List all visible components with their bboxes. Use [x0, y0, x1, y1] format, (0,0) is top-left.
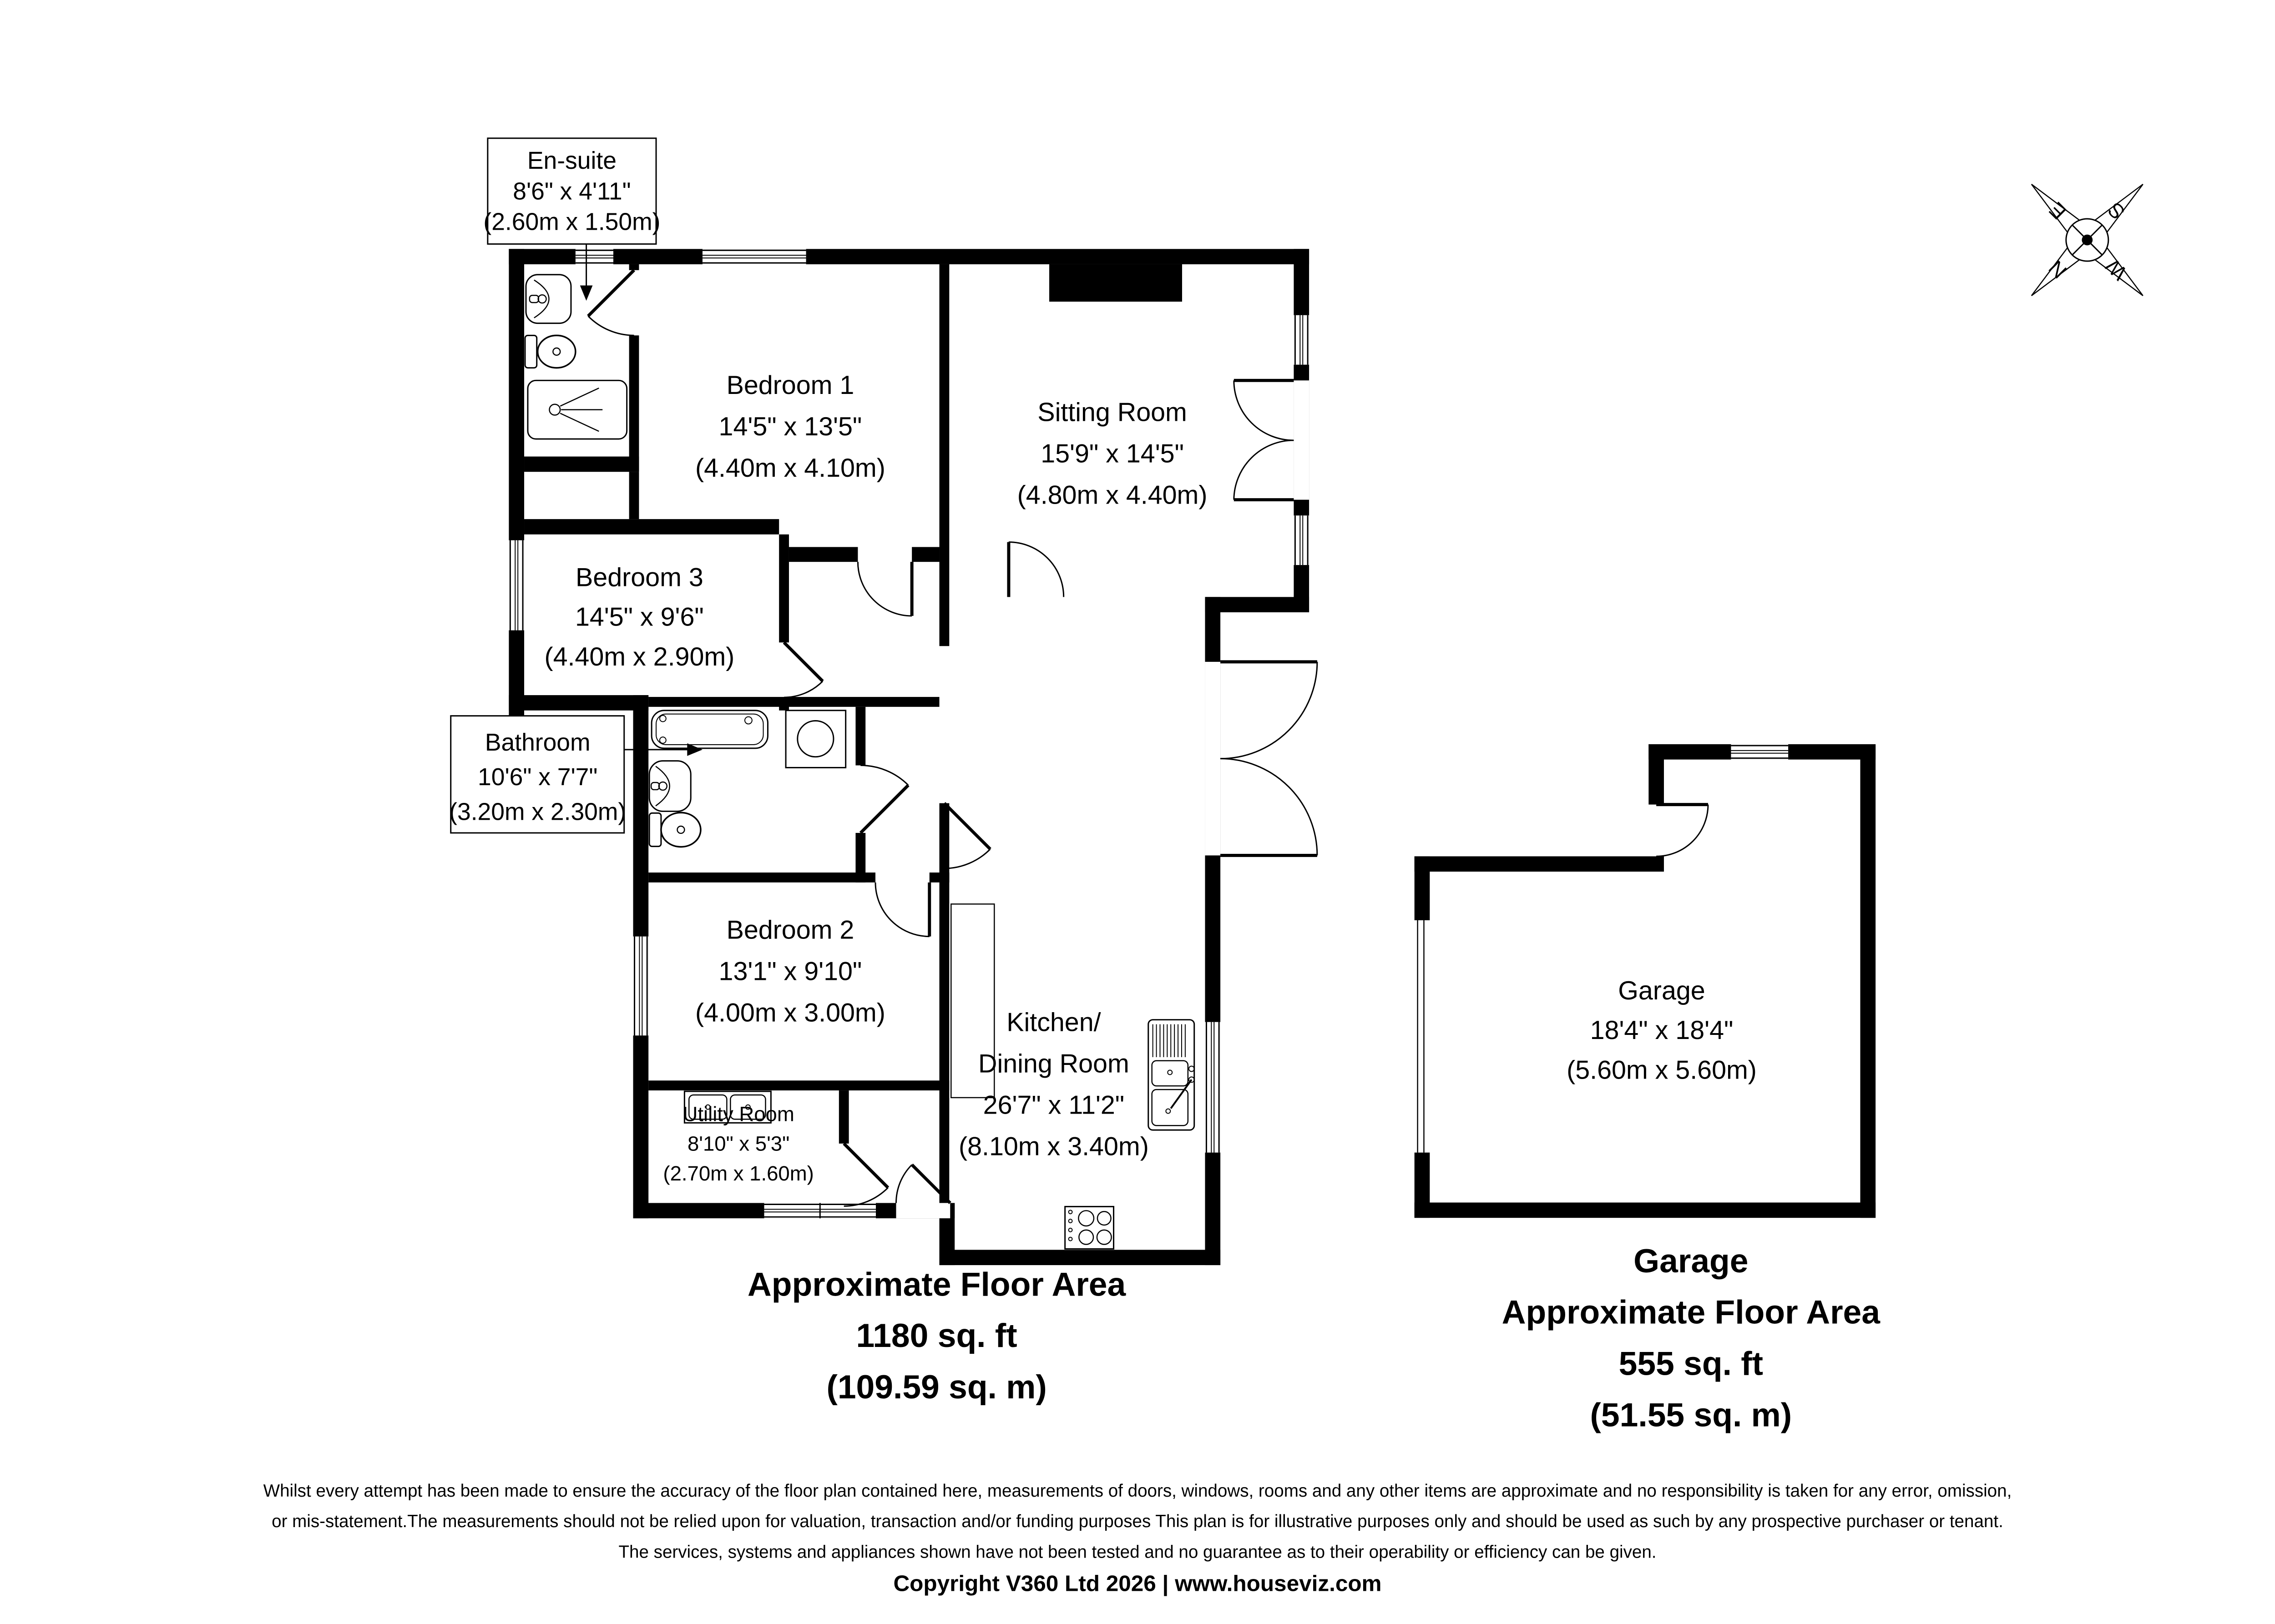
bedroom3-metric: (4.40m x 2.90m) — [544, 642, 734, 671]
door-sitting-room — [1009, 542, 1064, 597]
door-ensuite — [588, 270, 634, 336]
ensuite-leader-arrow-icon — [580, 285, 593, 301]
house-area-sqft: 1180 sq. ft — [856, 1317, 1017, 1354]
disclaimer-line1: Whilst every attempt has been made to en… — [263, 1481, 2012, 1501]
garage-metric: (5.60m x 5.60m) — [1567, 1055, 1757, 1084]
window-utility — [764, 1203, 876, 1218]
garage-area-sqft: 555 sq. ft — [1619, 1345, 1763, 1382]
window-kitchen — [1205, 1022, 1220, 1153]
garage-area-sqm: (51.55 sq. m) — [1590, 1396, 1792, 1433]
garage-name: Garage — [1618, 976, 1705, 1005]
ensuite-toilet-icon — [525, 335, 576, 368]
compass-rose-icon: N S E W — [1976, 129, 2199, 352]
kitchen-sink-icon — [1148, 1020, 1194, 1130]
bedroom1-name: Bedroom 1 — [727, 371, 854, 400]
window-sitting-lower — [1294, 515, 1309, 565]
ensuite-sink-icon — [526, 275, 571, 323]
hob-icon — [1065, 1206, 1114, 1249]
window-bedroom3 — [509, 540, 524, 630]
disclaimer-line3: The services, systems and appliances sho… — [618, 1542, 1656, 1562]
window-bedroom1 — [703, 249, 806, 264]
bedroom2-imperial: 13'1" x 9'10" — [719, 957, 862, 986]
bedroom2-metric: (4.00m x 3.00m) — [695, 999, 885, 1028]
shower-icon — [528, 380, 627, 439]
room-label-kitchen: Kitchen/ Dining Room 26'7" x 11'2" (8.10… — [959, 1008, 1149, 1161]
room-label-bedroom1: Bedroom 1 14'5" x 13'5" (4.40m x 4.10m) — [695, 371, 885, 483]
bathroom-leader-arrow-icon — [687, 743, 703, 756]
ensuite-metric: (2.60m x 1.50m) — [483, 209, 660, 236]
house-floor-area: Approximate Floor Area 1180 sq. ft (109.… — [748, 1266, 1127, 1406]
house-area-sqm: (109.59 sq. m) — [826, 1368, 1046, 1406]
kitchen-metric: (8.10m x 3.40m) — [959, 1132, 1149, 1161]
door-kitchen — [944, 803, 990, 869]
bathroom-imperial: 10'6" x 7'7" — [478, 764, 597, 791]
floor-plan-drawing: N S E W En-suite 8'6" x 4'11" (2.60m x 1… — [0, 0, 2275, 1607]
room-label-bedroom2: Bedroom 2 13'1" x 9'10" (4.00m x 3.00m) — [695, 916, 885, 1028]
kitchen-imperial: 26'7" x 11'2" — [983, 1091, 1124, 1120]
garage-side-door — [1656, 805, 1708, 857]
door-bedroom2 — [875, 883, 930, 937]
windows — [509, 249, 1309, 1218]
french-doors-kitchen — [1205, 662, 1317, 856]
copyright-line: Copyright V360 Ltd 2026 | www.houseviz.c… — [893, 1571, 1381, 1597]
door-bathroom — [860, 766, 908, 833]
door-bedroom1 — [858, 562, 912, 616]
bedroom1-metric: (4.40m x 4.10m) — [695, 454, 885, 483]
door-bedroom3 — [784, 642, 823, 697]
french-doors-sitting-room — [1234, 380, 1309, 499]
garage-window — [1731, 744, 1788, 760]
door-utility — [844, 1144, 888, 1206]
kitchen-name-line1: Kitchen/ — [1006, 1008, 1101, 1037]
sitting-name: Sitting Room — [1037, 398, 1187, 427]
kitchen-name-line2: Dining Room — [978, 1049, 1129, 1078]
garage-floor-area: Garage Approximate Floor Area 555 sq. ft… — [1502, 1242, 1881, 1433]
room-label-bedroom3: Bedroom 3 14'5" x 9'6" (4.40m x 2.90m) — [544, 563, 734, 671]
bedroom2-name: Bedroom 2 — [727, 916, 854, 945]
sitting-metric: (4.80m x 4.40m) — [1017, 480, 1208, 509]
ensuite-imperial: 8'6" x 4'11" — [513, 178, 631, 205]
bedroom3-name: Bedroom 3 — [576, 563, 703, 592]
bedroom3-imperial: 14'5" x 9'6" — [575, 603, 704, 632]
garage-area-heading: Garage — [1633, 1242, 1748, 1280]
bathroom-name: Bathroom — [485, 729, 591, 756]
cylinder-cupboard-icon — [786, 711, 846, 768]
room-label-utility: Utility Room 8'10" x 5'3" (2.70m x 1.60m… — [663, 1102, 814, 1185]
room-label-garage: Garage 18'4" x 18'4" (5.60m x 5.60m) — [1567, 976, 1757, 1084]
garage-door — [1418, 920, 1424, 1153]
ensuite-name: En-suite — [527, 147, 617, 174]
disclaimer-line2: or mis-statement.The measurements should… — [272, 1512, 2003, 1531]
garage-imperial: 18'4" x 18'4" — [1590, 1016, 1734, 1045]
bathroom-sink-icon — [649, 761, 691, 812]
house-area-title: Approximate Floor Area — [748, 1266, 1127, 1303]
utility-name: Utility Room — [682, 1102, 794, 1125]
window-ensuite — [576, 249, 613, 264]
house-walls — [509, 249, 1309, 1265]
bedroom1-imperial: 14'5" x 13'5" — [719, 412, 862, 441]
bathroom-metric: (3.20m x 2.30m) — [449, 798, 626, 825]
bathroom-toilet-icon — [649, 812, 701, 847]
window-bedroom2 — [633, 937, 649, 1036]
bath-icon — [652, 711, 768, 748]
floor-plan-page: N S E W En-suite 8'6" x 4'11" (2.60m x 1… — [0, 0, 2275, 1607]
utility-metric: (2.70m x 1.60m) — [663, 1162, 814, 1185]
garage-area-title: Approximate Floor Area — [1502, 1294, 1881, 1331]
window-sitting-upper — [1294, 315, 1309, 365]
room-labels: Bedroom 1 14'5" x 13'5" (4.40m x 4.10m) … — [544, 371, 1756, 1185]
utility-imperial: 8'10" x 5'3" — [688, 1132, 789, 1155]
sitting-imperial: 15'9" x 14'5" — [1041, 439, 1184, 468]
disclaimer-block: Whilst every attempt has been made to en… — [263, 1481, 2012, 1597]
room-label-sitting: Sitting Room 15'9" x 14'5" (4.80m x 4.40… — [1017, 398, 1208, 509]
chimney-breast — [1049, 264, 1182, 302]
